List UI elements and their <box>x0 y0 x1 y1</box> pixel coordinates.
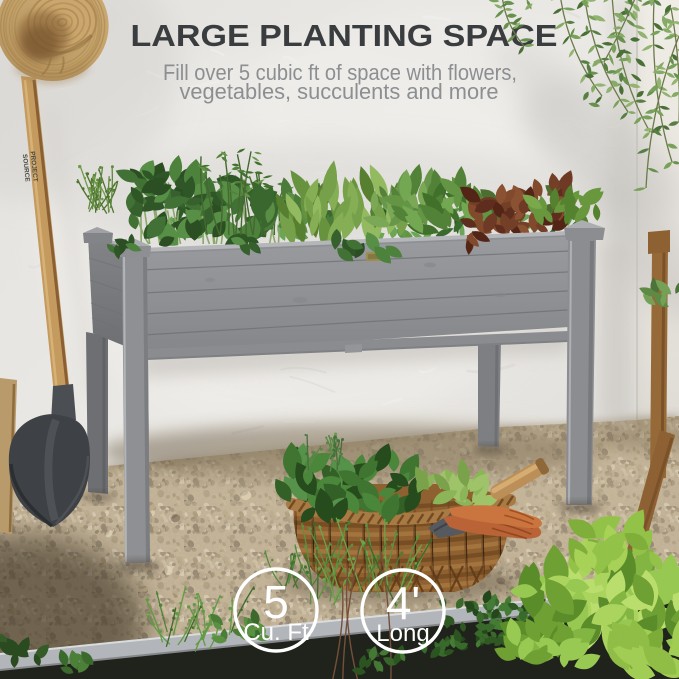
svg-text:Cu. Ft: Cu. Ft <box>243 619 309 646</box>
svg-text:Long: Long <box>376 620 429 647</box>
svg-text:vegetables, succulents and mor: vegetables, succulents and more <box>180 79 499 104</box>
svg-text:LARGE PLANTING SPACE: LARGE PLANTING SPACE <box>131 19 558 53</box>
